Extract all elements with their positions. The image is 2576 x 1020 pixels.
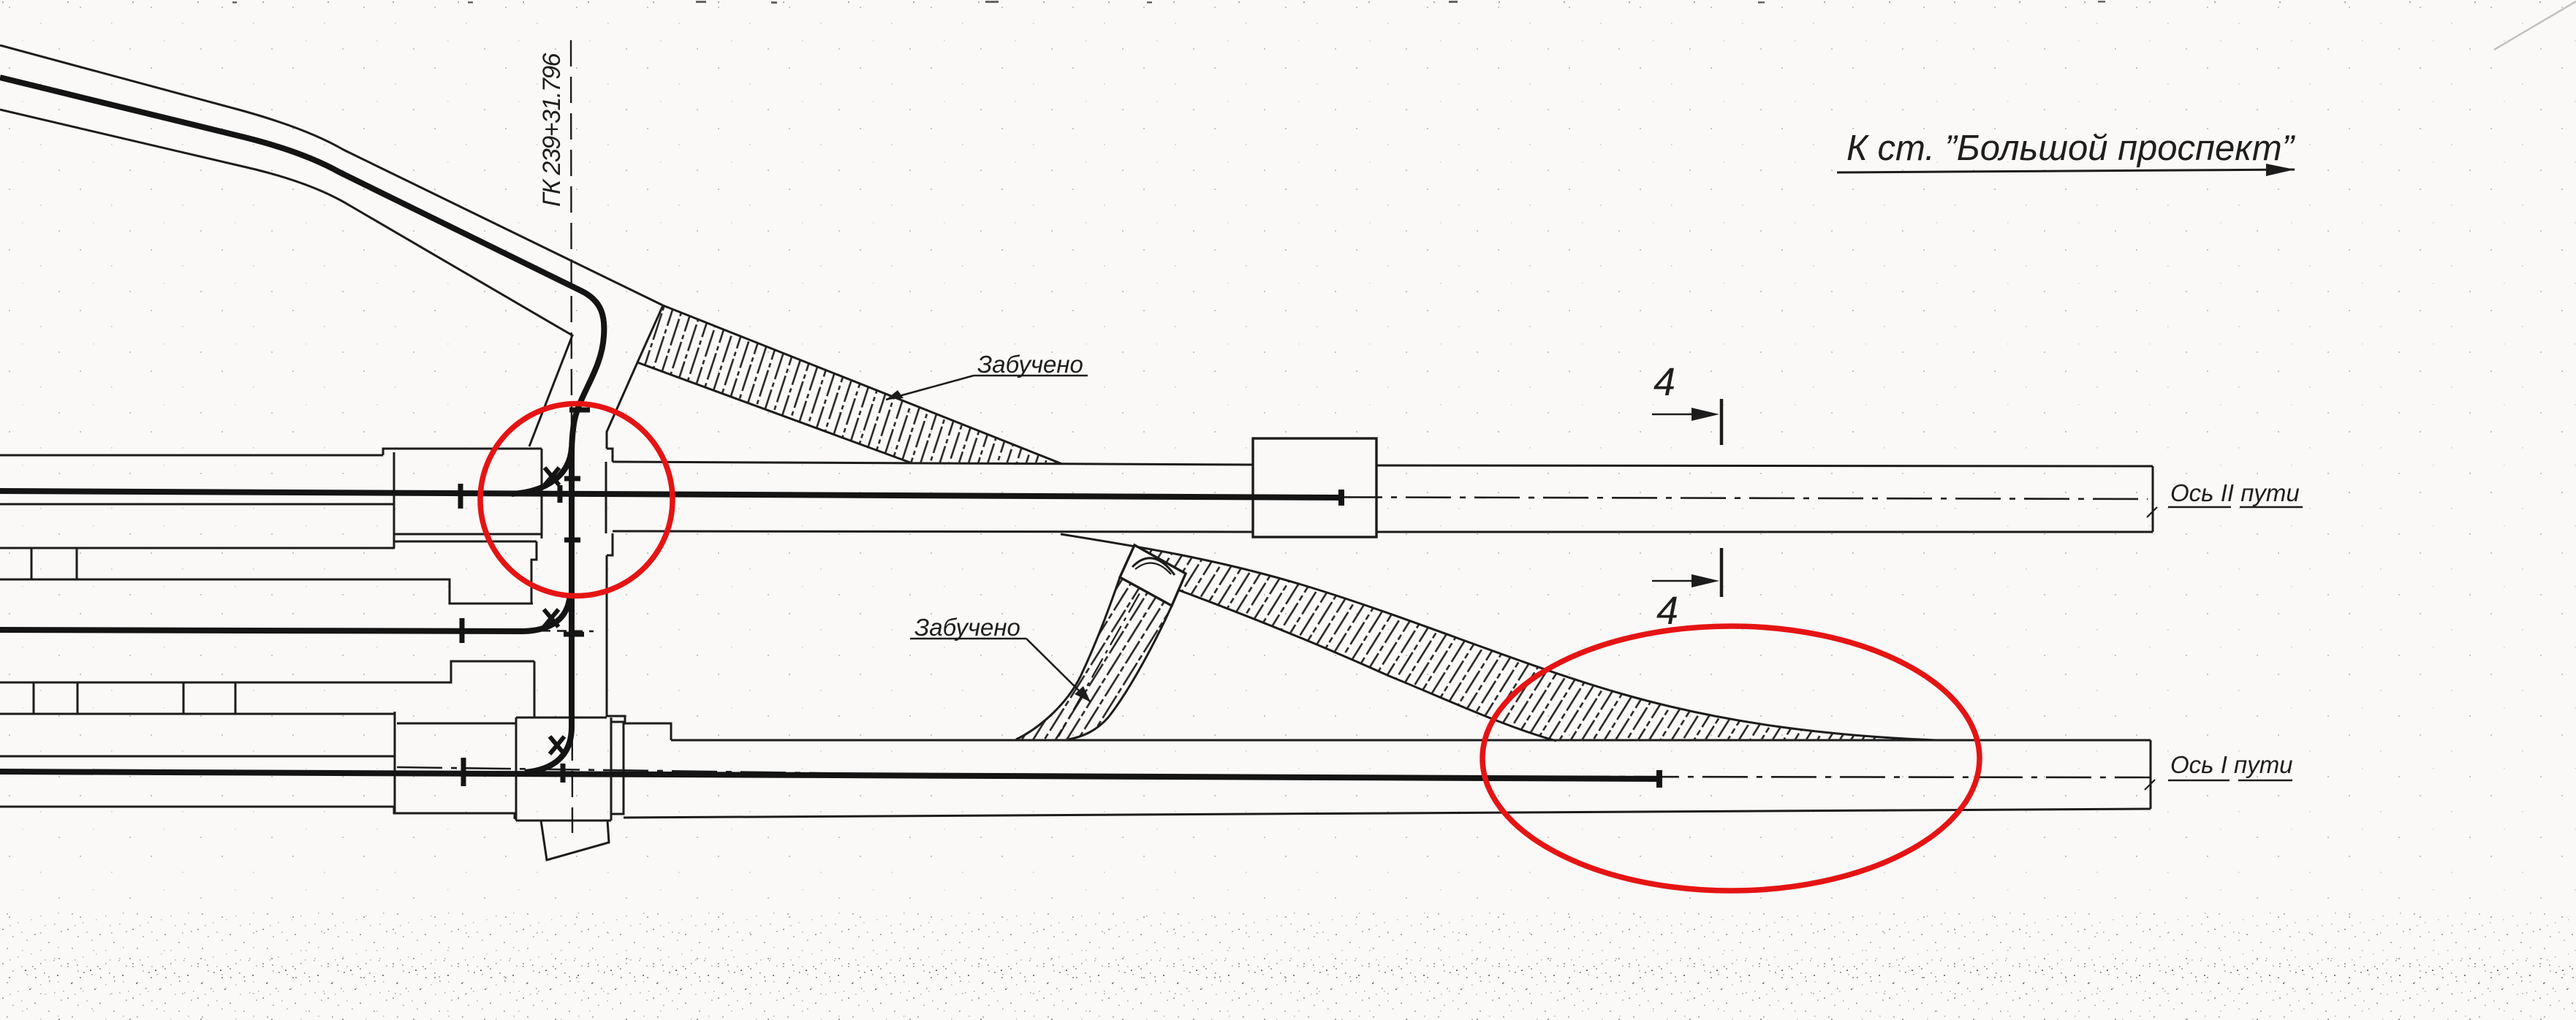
svg-text:4: 4 [1653,360,1675,404]
svg-text:Ось II пути: Ось II пути [2170,479,2300,506]
svg-text:4: 4 [1656,589,1678,633]
svg-text:Забучено: Забучено [914,614,1020,641]
svg-text:Забучено: Забучено [977,351,1083,378]
svg-text:К ст. ”Большой проспект”: К ст. ”Большой проспект” [1846,129,2296,168]
svg-text:ГК 239+31.796: ГК 239+31.796 [538,53,566,207]
svg-text:Ось I пути: Ось I пути [2170,751,2293,778]
